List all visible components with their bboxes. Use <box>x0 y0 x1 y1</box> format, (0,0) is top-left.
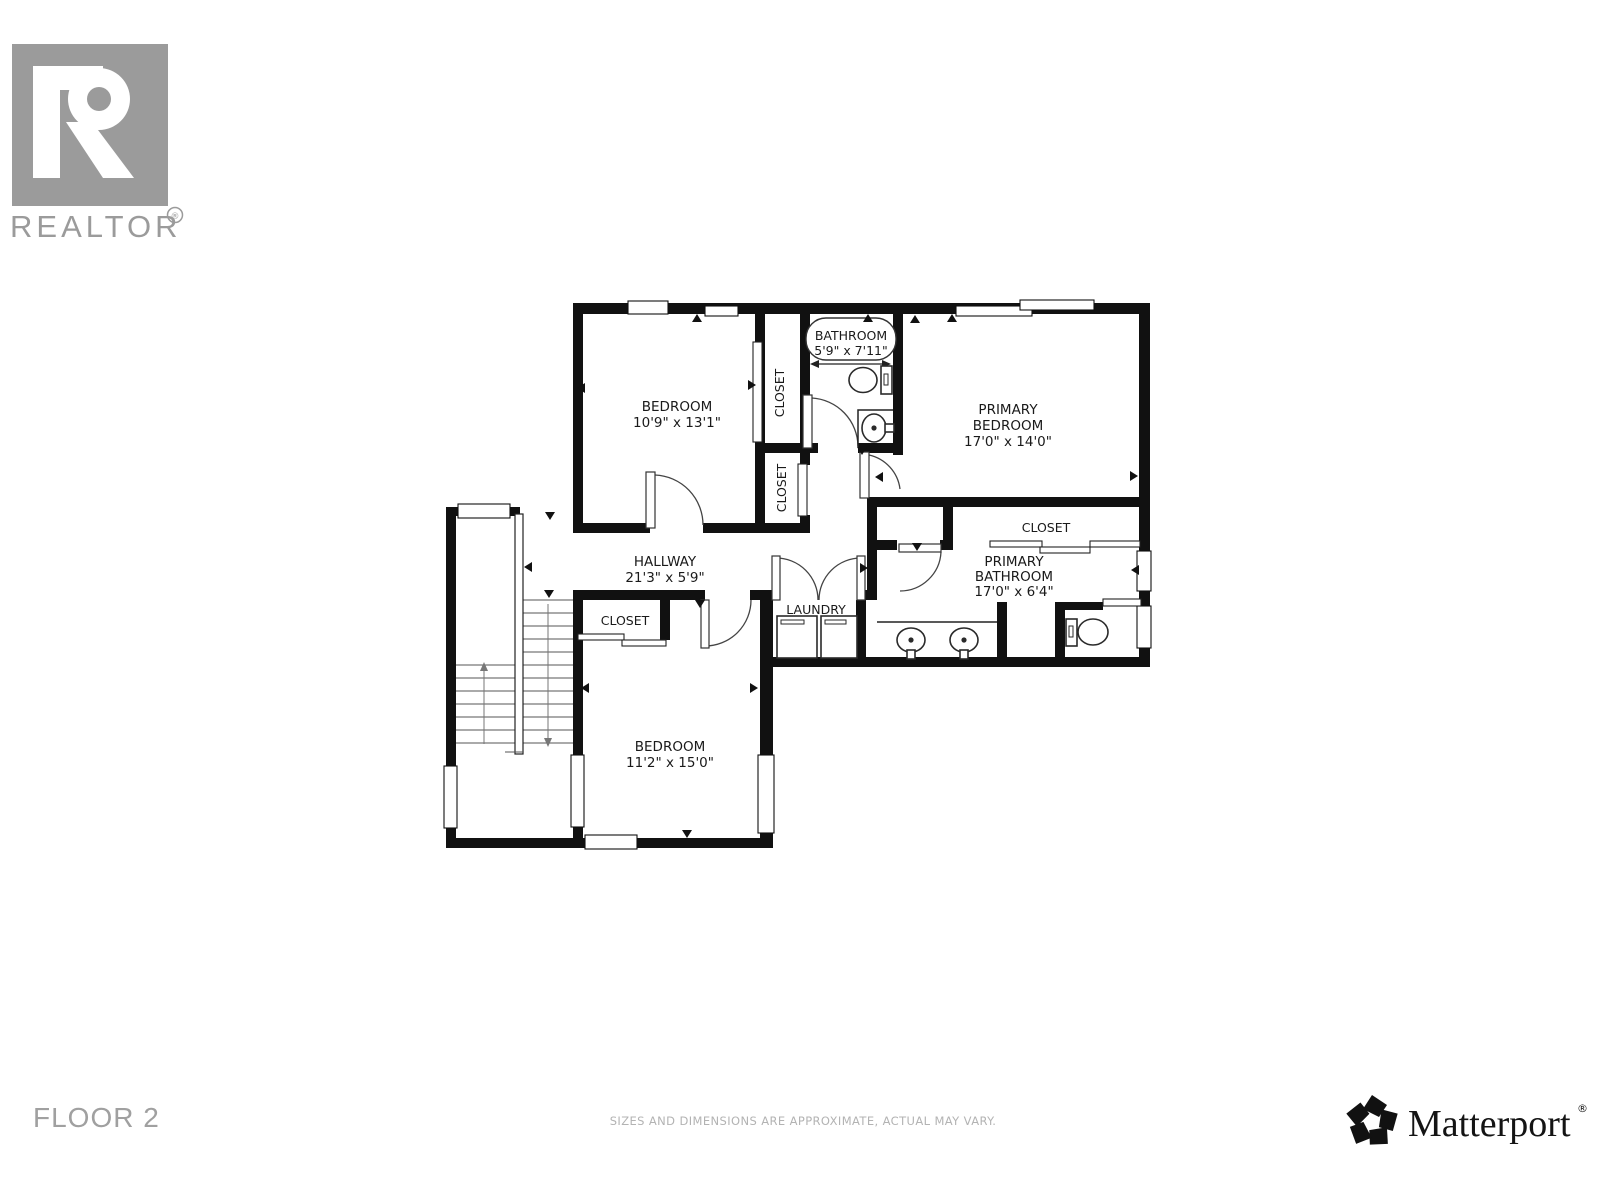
room-dims-primary-bedroom: 17'0" x 14'0" <box>964 434 1052 450</box>
door-laundry-right <box>857 556 865 600</box>
toilet-icon <box>1066 619 1108 646</box>
window <box>444 766 457 828</box>
room-label-bedroom-lower: BEDROOM <box>635 739 705 755</box>
realtor-logo: REALTOR ® <box>10 44 183 244</box>
room-label-bathroom: BATHROOM <box>815 328 887 343</box>
room-labels: BEDROOM 10'9" x 13'1" BATHROOM 5'9" x 7'… <box>601 328 1071 771</box>
door-primary-bedroom <box>860 452 869 498</box>
staircase <box>456 514 573 754</box>
door-bedroom-lower <box>701 600 709 648</box>
wall-hall-north-a <box>573 523 650 533</box>
stair-railing <box>515 514 523 754</box>
toilet-icon <box>849 366 892 394</box>
stair-direction-arrow-down <box>544 604 552 747</box>
room-label-primary-bathroom-2: BATHROOM <box>975 569 1053 585</box>
matterport-wordmark: Matterport <box>1408 1103 1571 1145</box>
window <box>571 755 584 827</box>
matterport-registered: ® <box>1577 1102 1588 1115</box>
dryer-icon <box>821 616 857 658</box>
sink-icon <box>858 410 894 447</box>
sliding-door-closet-lower <box>798 464 807 516</box>
room-label-bedroom-upper: BEDROOM <box>642 399 712 415</box>
room-dims-bathroom: 5'9" x 7'11" <box>814 343 887 358</box>
sliding-door-primary-closet <box>1090 541 1140 547</box>
realtor-wordmark: REALTOR <box>10 209 182 244</box>
wall-hallcloset-east <box>660 600 670 640</box>
room-label-closet-lower: CLOSET <box>774 463 789 512</box>
room-label-closet-primary: CLOSET <box>1022 520 1071 535</box>
sliding-door-hall-closet <box>578 634 624 640</box>
sink-icon <box>897 628 925 659</box>
stair-direction-arrow-up <box>480 662 488 744</box>
room-label-hallway: HALLWAY <box>634 554 697 570</box>
window <box>705 306 738 316</box>
matterport-pinwheel-icon <box>1344 1095 1403 1153</box>
window <box>1020 300 1094 310</box>
wall-hall-south-a <box>573 590 705 600</box>
window <box>1137 551 1151 591</box>
room-label-primary-bedroom-1: PRIMARY <box>978 402 1038 418</box>
sliding-door-primary-closet <box>1040 547 1090 553</box>
dimension-line <box>810 360 891 368</box>
room-label-primary-bathroom-1: PRIMARY <box>984 554 1044 570</box>
matterport-logo: Matterport ® <box>1344 1095 1588 1153</box>
floorplan-svg: REALTOR ® <box>0 0 1600 1200</box>
disclaimer-text: SIZES AND DIMENSIONS ARE APPROXIMATE, AC… <box>610 1114 997 1128</box>
pocket-door-toilet-nook <box>1103 599 1141 606</box>
door-laundry-left <box>772 556 780 600</box>
stair-treads-left <box>456 665 515 743</box>
sliding-door-closet-upper <box>753 342 762 442</box>
floorplan-page: REALTOR ® <box>0 0 1600 1200</box>
wall-pbath-north-a <box>867 540 897 550</box>
room-label-closet-upper: CLOSET <box>772 368 787 417</box>
room-dims-hallway: 21'3" x 5'9" <box>625 570 704 586</box>
door-bedroom-upper <box>646 472 655 528</box>
svg-text:®: ® <box>171 212 180 222</box>
wall-bedroom-upper-west <box>573 303 583 533</box>
wall-pbath-north-b <box>940 540 953 550</box>
wall-primary-south <box>867 497 1150 507</box>
wall-toilet-nook-west <box>1055 602 1065 657</box>
room-label-laundry: LAUNDRY <box>786 602 846 617</box>
sink-icon <box>950 628 978 659</box>
window <box>1137 606 1151 648</box>
wall-vanity-stub <box>997 602 1007 657</box>
washer-icon <box>777 616 817 658</box>
wall-hall-north-b <box>703 523 810 533</box>
window <box>458 504 510 518</box>
footer: FLOOR 2 SIZES AND DIMENSIONS ARE APPROXI… <box>33 1095 1588 1153</box>
window <box>628 301 668 314</box>
room-dims-bedroom-upper: 10'9" x 13'1" <box>633 415 721 431</box>
room-label-primary-bedroom-2: BEDROOM <box>973 418 1043 434</box>
sliding-door-hall-closet <box>622 640 666 646</box>
sliding-door-primary-closet <box>990 541 1042 547</box>
wall-toilet-nook-north <box>1055 602 1103 610</box>
door-bathroom <box>803 395 812 448</box>
room-dims-bedroom-lower: 11'2" x 15'0" <box>626 755 714 771</box>
room-dims-primary-bathroom: 17'0" x 6'4" <box>974 584 1053 600</box>
window <box>758 755 774 833</box>
wall-primary-closet-west <box>943 497 953 547</box>
room-label-closet-hall: CLOSET <box>601 613 650 628</box>
window <box>585 835 637 849</box>
floor-label: FLOOR 2 <box>33 1102 160 1133</box>
